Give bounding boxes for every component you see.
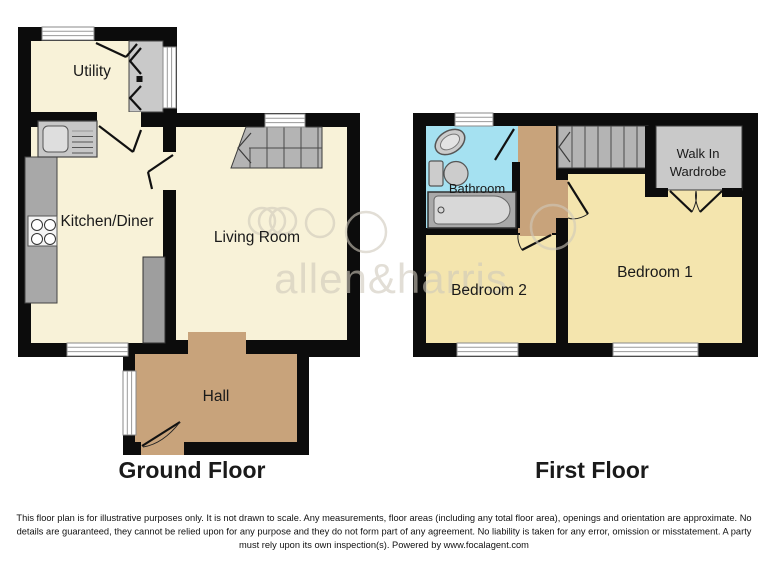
bedroom2-bottom-window [457,343,518,356]
first-floor-stairs [558,126,648,168]
bathroom-top-window [455,113,493,126]
living-room-top-window [265,114,305,127]
bathtub [428,192,516,228]
floorplan-canvas: allen&harris Utility Kitchen/Diner Livin… [0,0,768,576]
wardrobe-label-line2: Wardrobe [670,164,727,179]
bathroom-label: Bathroom [449,181,505,196]
hall-label: Hall [203,388,230,405]
landing-floor [518,126,556,233]
kitchen-sink [38,121,97,157]
disclaimer-line-3: must rely upon its own inspection(s). Po… [239,540,529,550]
bedroom1-label: Bedroom 1 [617,264,693,281]
ground-floor-plan [18,27,360,455]
bedroom2-label: Bedroom 2 [451,282,527,299]
kitchen-bottom-window [67,343,128,356]
disclaimer-line-1: This floor plan is for illustrative purp… [16,513,751,523]
hall-side-window [123,371,136,435]
first-floor-title: First Floor [535,457,649,483]
living-room-label: Living Room [214,229,300,246]
bedroom1-floor [568,174,742,343]
ground-floor-stairs [231,127,322,168]
landing-bedroom2-opening [520,228,552,236]
landing-bedroom1-opening [556,180,568,218]
kitchen-chimney-block [143,257,165,343]
kitchen-diner-label: Kitchen/Diner [60,213,153,230]
cupboard-side-window [163,47,176,108]
living-hall-opening [188,332,246,357]
utility-label: Utility [73,63,111,80]
ground-floor-title: Ground Floor [119,457,266,483]
floorplan-page: allen&harris Utility Kitchen/Diner Livin… [0,0,768,576]
disclaimer-line-2: details are guaranteed, they cannot be r… [17,527,752,537]
utility-top-window [42,27,94,40]
bedroom1-bottom-window [613,343,698,356]
wardrobe-label-line1: Walk In [677,146,720,161]
kitchen-hob [28,216,57,246]
utility-kitchen-opening [97,112,141,128]
